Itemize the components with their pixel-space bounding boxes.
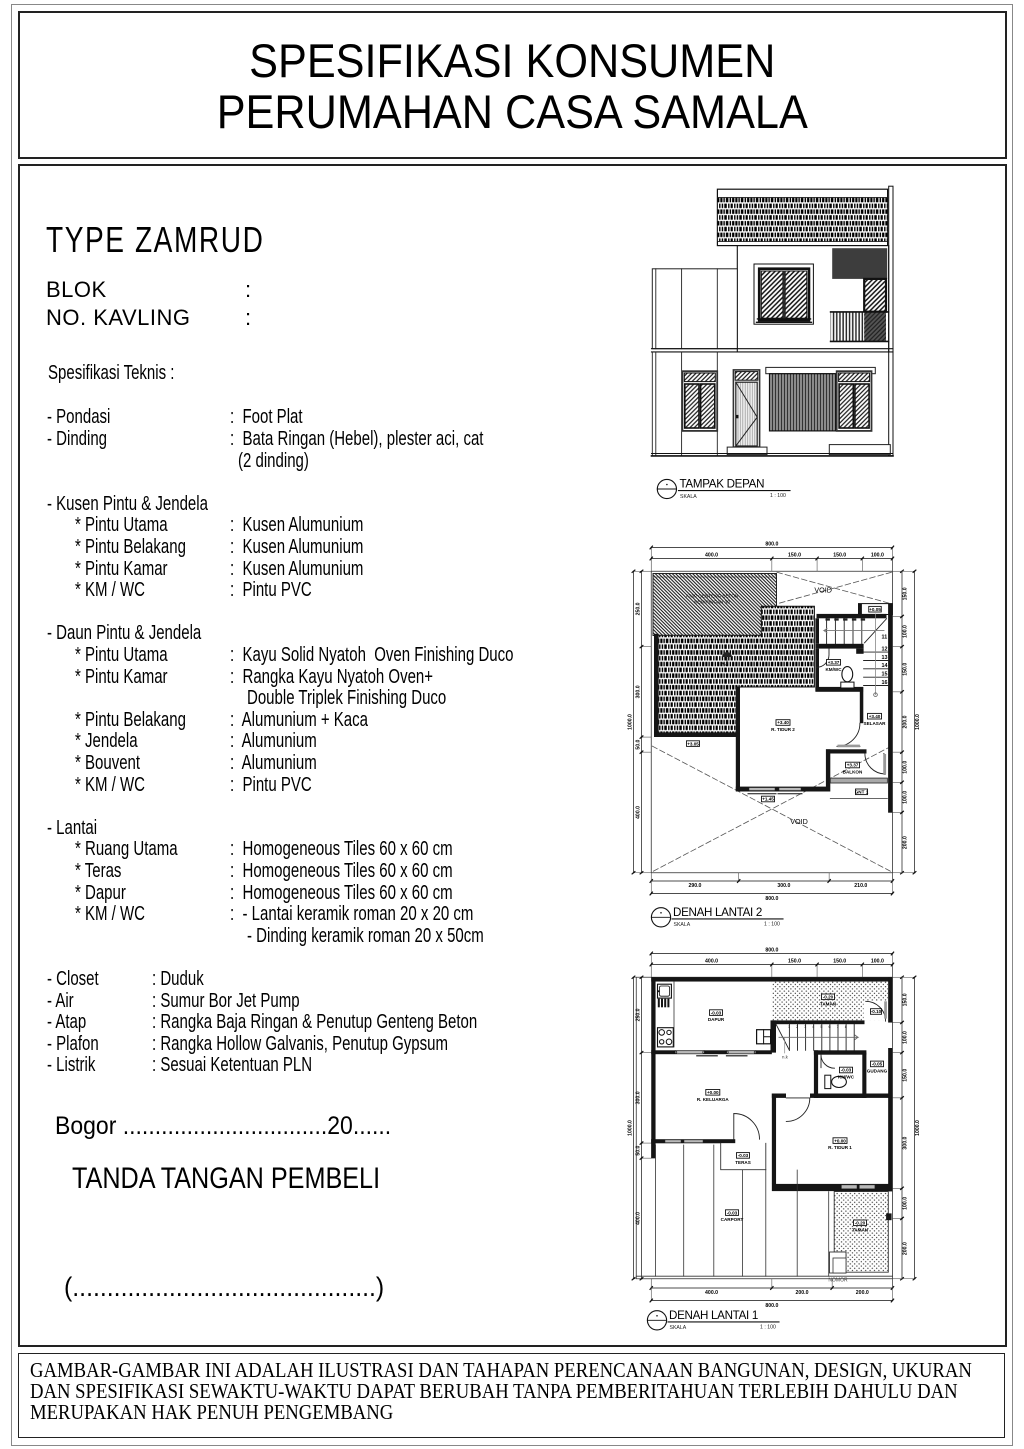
svg-text:1000.0: 1000.0 [915, 714, 921, 730]
svg-text:100.0: 100.0 [903, 1031, 909, 1044]
svg-text:150.0: 150.0 [903, 993, 909, 1006]
svg-text:300.0: 300.0 [777, 883, 790, 889]
svg-text:400.0: 400.0 [705, 1290, 718, 1296]
svg-text:3: 3 [804, 1025, 806, 1029]
svg-text:800.0: 800.0 [765, 947, 778, 953]
svg-text:R. TIDUR 2: R. TIDUR 2 [771, 727, 795, 732]
svg-text:100.0: 100.0 [903, 761, 909, 774]
svg-text:250.0: 250.0 [635, 602, 641, 615]
svg-text:-0.20: -0.20 [823, 995, 834, 1000]
svg-text:16: 16 [882, 680, 888, 686]
svg-text:1 : 100: 1 : 100 [760, 1325, 776, 1331]
svg-text:VOID: VOID [790, 817, 808, 826]
svg-text:800.0: 800.0 [765, 541, 778, 547]
svg-text:50.0: 50.0 [635, 739, 641, 749]
svg-text:1000.0: 1000.0 [627, 714, 633, 730]
svg-text:6: 6 [829, 1025, 831, 1029]
svg-text:300.0: 300.0 [635, 1091, 641, 1104]
svg-text:2: 2 [796, 1025, 798, 1029]
svg-text:200.0: 200.0 [856, 1290, 869, 1296]
svg-text:ATAP GENTENG BETON: ATAP GENTENG BETON [686, 594, 738, 599]
svg-text:400.0: 400.0 [705, 958, 718, 964]
svg-text:KM/WC: KM/WC [825, 667, 842, 672]
svg-text:-0.03: -0.03 [711, 1010, 722, 1015]
svg-text:210.0: 210.0 [854, 883, 867, 889]
svg-text:800.0: 800.0 [765, 1303, 778, 1309]
svg-text:200.0: 200.0 [903, 1242, 909, 1255]
svg-text:-0.03: -0.03 [727, 1210, 738, 1215]
svg-text:VOID: VOID [814, 585, 832, 594]
svg-text:150.0: 150.0 [903, 587, 909, 600]
svg-text:13: 13 [882, 655, 888, 661]
svg-text:150.0: 150.0 [903, 1069, 909, 1082]
svg-text:TERAS: TERAS [735, 1160, 751, 1165]
svg-text:DENAH LANTAI 1: DENAH LANTAI 1 [669, 1309, 758, 1322]
svg-text:4: 4 [812, 1025, 814, 1029]
svg-text:-0.10: -0.10 [871, 1009, 882, 1014]
svg-text:100.0: 100.0 [903, 625, 909, 638]
svg-text:R. TIDUR 1: R. TIDUR 1 [828, 1145, 852, 1150]
svg-text:TAMPAK DEPAN: TAMPAK DEPAN [680, 478, 765, 491]
svg-text:+0.05: +0.05 [869, 607, 881, 612]
svg-text:100.0: 100.0 [871, 552, 884, 558]
svg-text:200.0: 200.0 [903, 715, 909, 728]
svg-text:CARPORT: CARPORT [721, 1217, 744, 1222]
svg-text:150.0: 150.0 [833, 958, 846, 964]
svg-text:400.0: 400.0 [705, 552, 718, 558]
svg-text:8: 8 [845, 1025, 847, 1029]
svg-text:+3.40: +3.40 [777, 720, 789, 725]
svg-text:-0.03: -0.03 [841, 1068, 852, 1073]
svg-text:BALKON: BALKON [843, 770, 863, 775]
svg-text:1000.0: 1000.0 [915, 1120, 921, 1136]
svg-text:SKALA: SKALA [670, 1325, 687, 1331]
svg-text:5: 5 [820, 1025, 822, 1029]
svg-text:1 : 100: 1 : 100 [770, 493, 786, 499]
svg-text:GNT 1: GNT 1 [855, 790, 869, 795]
svg-text:-0.03: -0.03 [738, 1153, 749, 1158]
svg-text:+3.05: +3.05 [687, 741, 699, 746]
svg-text:150.0: 150.0 [788, 552, 801, 558]
svg-text:+1.45: +1.45 [762, 797, 774, 802]
svg-text:100.0: 100.0 [903, 791, 909, 804]
svg-text:290.0: 290.0 [688, 883, 701, 889]
svg-text:+0.00: +0.00 [707, 1090, 719, 1095]
svg-text:NOMOR: NOMOR [828, 1277, 848, 1283]
svg-text:+0.00: +0.00 [834, 1138, 846, 1143]
svg-text:7: 7 [837, 1025, 839, 1029]
svg-text:TAMAN: TAMAN [820, 1001, 837, 1006]
svg-text:150.0: 150.0 [833, 552, 846, 558]
svg-text:+3.40: +3.40 [869, 714, 881, 719]
svg-text:GUDANG: GUDANG [867, 1069, 888, 1074]
svg-text:400.0: 400.0 [635, 1212, 641, 1225]
svg-text:150.0: 150.0 [788, 958, 801, 964]
svg-text:200.0: 200.0 [796, 1290, 809, 1296]
svg-text:TAMAN: TAMAN [852, 1227, 869, 1232]
svg-text:14: 14 [882, 663, 888, 669]
svg-text:SKALA: SKALA [680, 494, 697, 500]
svg-text:-0.05: -0.05 [872, 1062, 883, 1067]
svg-text:300.0: 300.0 [903, 1136, 909, 1149]
svg-text:100.0: 100.0 [871, 958, 884, 964]
svg-text:+3.37: +3.37 [828, 660, 840, 665]
svg-text:n.k: n.k [782, 1055, 789, 1060]
svg-text:12: 12 [882, 647, 888, 653]
svg-text:SELASAR: SELASAR [864, 721, 887, 726]
svg-text:200.0: 200.0 [903, 836, 909, 849]
svg-text:+3.37: +3.37 [847, 763, 859, 768]
svg-text:1 : 100: 1 : 100 [764, 922, 780, 928]
svg-text:11: 11 [882, 635, 888, 641]
svg-text:400.0: 400.0 [635, 806, 641, 819]
svg-text:R. KELUARGA: R. KELUARGA [697, 1097, 730, 1102]
svg-text:150.0: 150.0 [903, 663, 909, 676]
svg-text:300.0: 300.0 [635, 685, 641, 698]
svg-text:50.0: 50.0 [635, 1145, 641, 1155]
svg-text:1: 1 [788, 1025, 790, 1029]
svg-text:15: 15 [882, 672, 888, 678]
svg-text:800.0: 800.0 [765, 896, 778, 902]
svg-text:100.0: 100.0 [903, 1197, 909, 1210]
svg-text:DAPUR: DAPUR [708, 1017, 725, 1022]
svg-text:-0.20: -0.20 [855, 1221, 866, 1226]
svg-text:1000.0: 1000.0 [627, 1120, 633, 1136]
svg-text:KM/WC: KM/WC [838, 1075, 855, 1080]
svg-text:KEMIRINGAN 30: KEMIRINGAN 30 [694, 600, 730, 605]
svg-text:DENAH LANTAI 2: DENAH LANTAI 2 [673, 906, 762, 919]
svg-text:SKALA: SKALA [674, 922, 691, 928]
svg-text:250.0: 250.0 [635, 1008, 641, 1021]
